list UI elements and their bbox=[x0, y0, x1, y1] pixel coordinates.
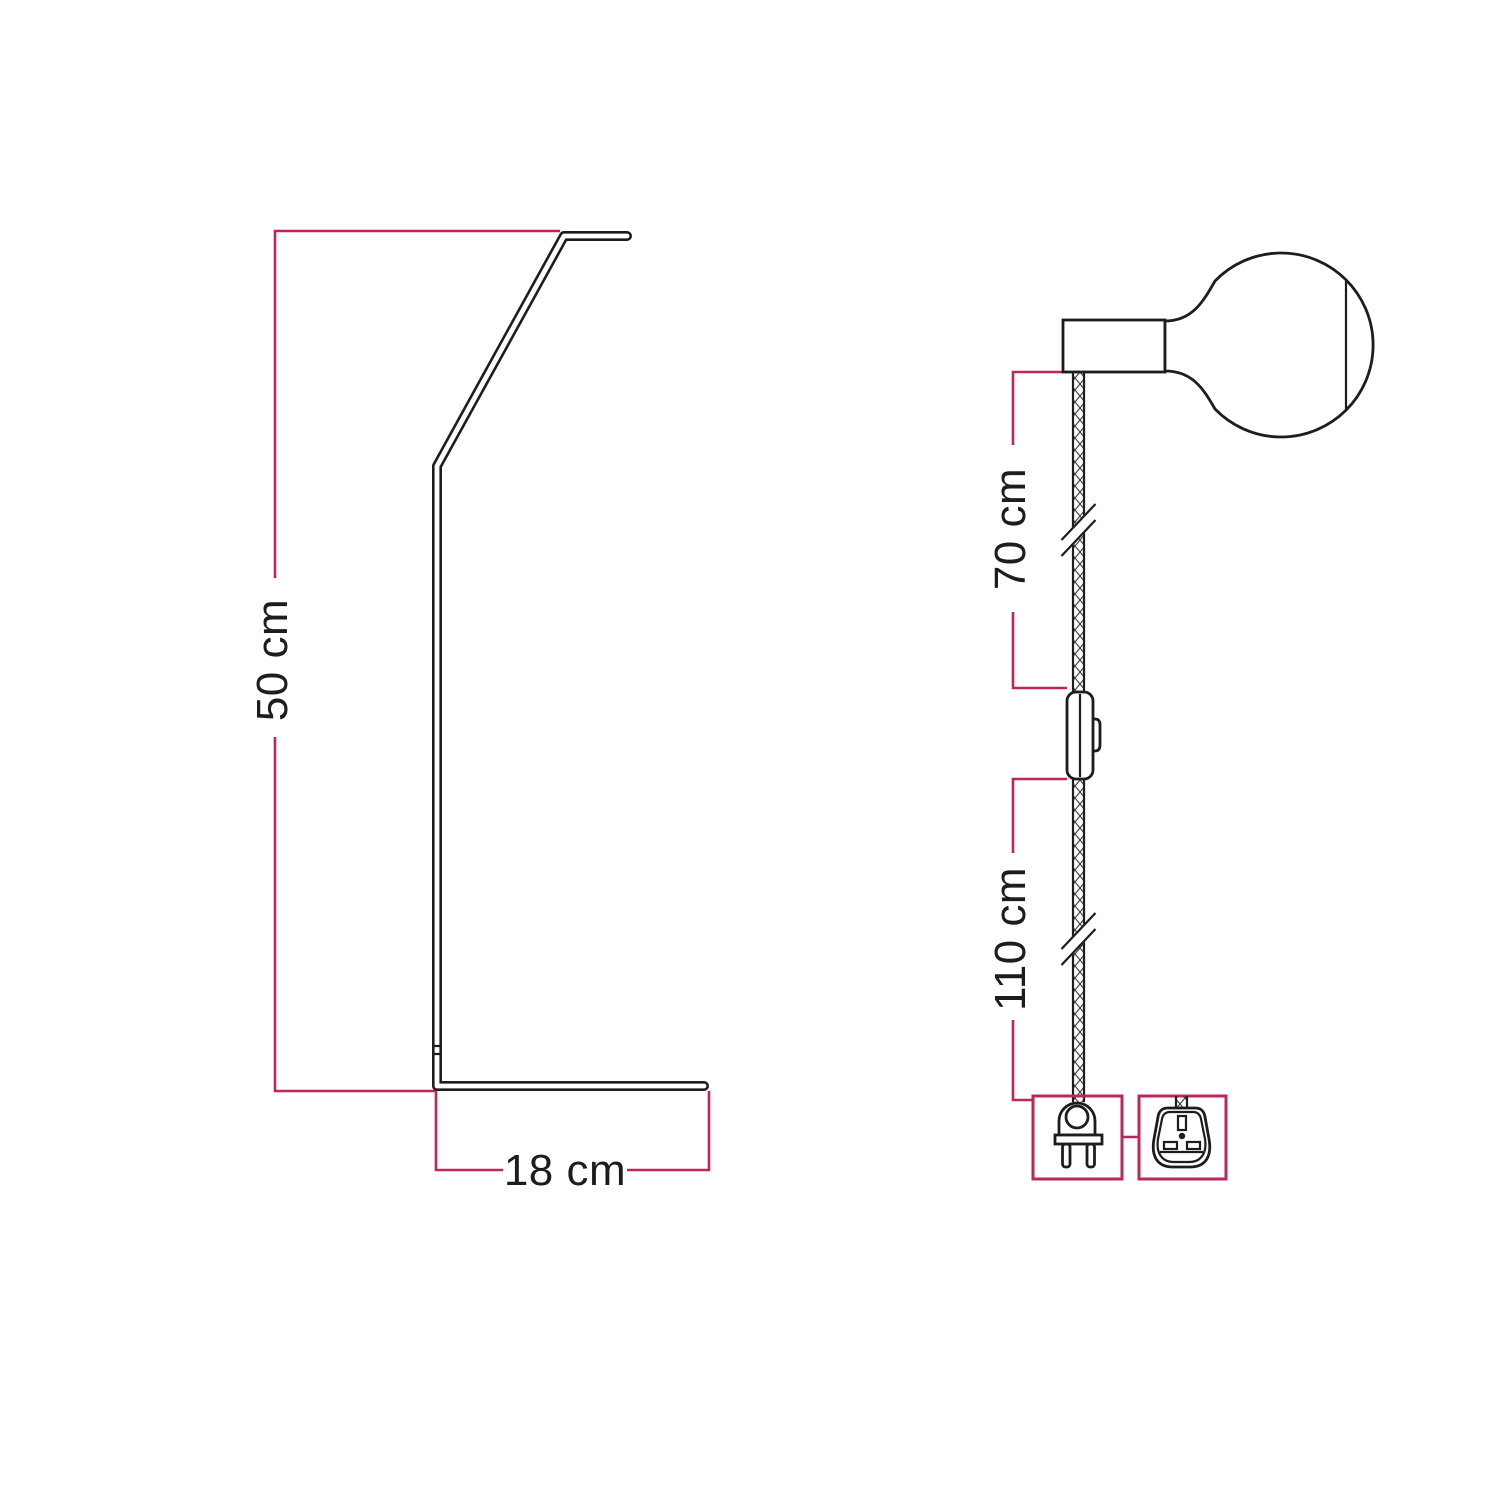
height-dimension-label: 50 cm bbox=[251, 599, 295, 721]
cable-set-view bbox=[1013, 253, 1373, 1179]
height-dimension-line bbox=[275, 231, 560, 1091]
euro-plug-icon bbox=[1055, 1103, 1102, 1167]
upper-cable-dimension-label: 70 cm bbox=[989, 468, 1033, 590]
globe-bulb-icon bbox=[1165, 253, 1373, 437]
base-depth-dimension-label: 18 cm bbox=[504, 1149, 626, 1193]
lamp-holder-icon bbox=[1063, 320, 1165, 372]
lower-cable-dimension-label: 110 cm bbox=[989, 867, 1033, 1011]
stand-side-view bbox=[275, 231, 709, 1170]
inline-switch-icon bbox=[1067, 692, 1100, 779]
uk-plug-screw-dot bbox=[1179, 1133, 1185, 1139]
diagram-artwork bbox=[0, 0, 1500, 1500]
product-dimensions-diagram: 50 cm 18 cm 70 cm 110 cm bbox=[0, 0, 1500, 1500]
stand-outline bbox=[432, 236, 704, 1086]
uk-plug-icon bbox=[1153, 1096, 1209, 1167]
